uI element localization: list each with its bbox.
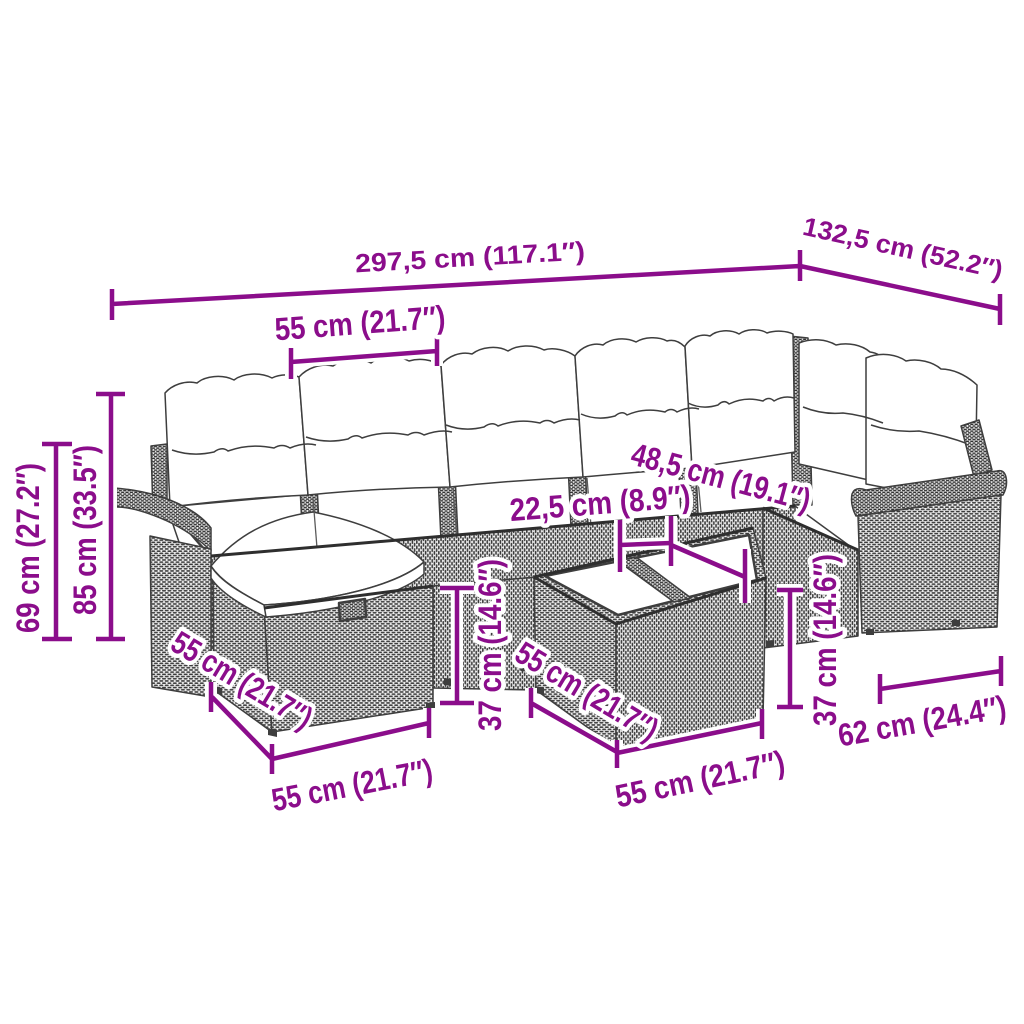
svg-text:85 cm (33.5″): 85 cm (33.5″) bbox=[67, 445, 103, 615]
svg-text:69 cm (27.2″): 69 cm (27.2″) bbox=[10, 463, 46, 633]
svg-text:37 cm (14.6″): 37 cm (14.6″) bbox=[472, 559, 508, 731]
svg-text:37 cm (14.6″): 37 cm (14.6″) bbox=[807, 554, 843, 726]
